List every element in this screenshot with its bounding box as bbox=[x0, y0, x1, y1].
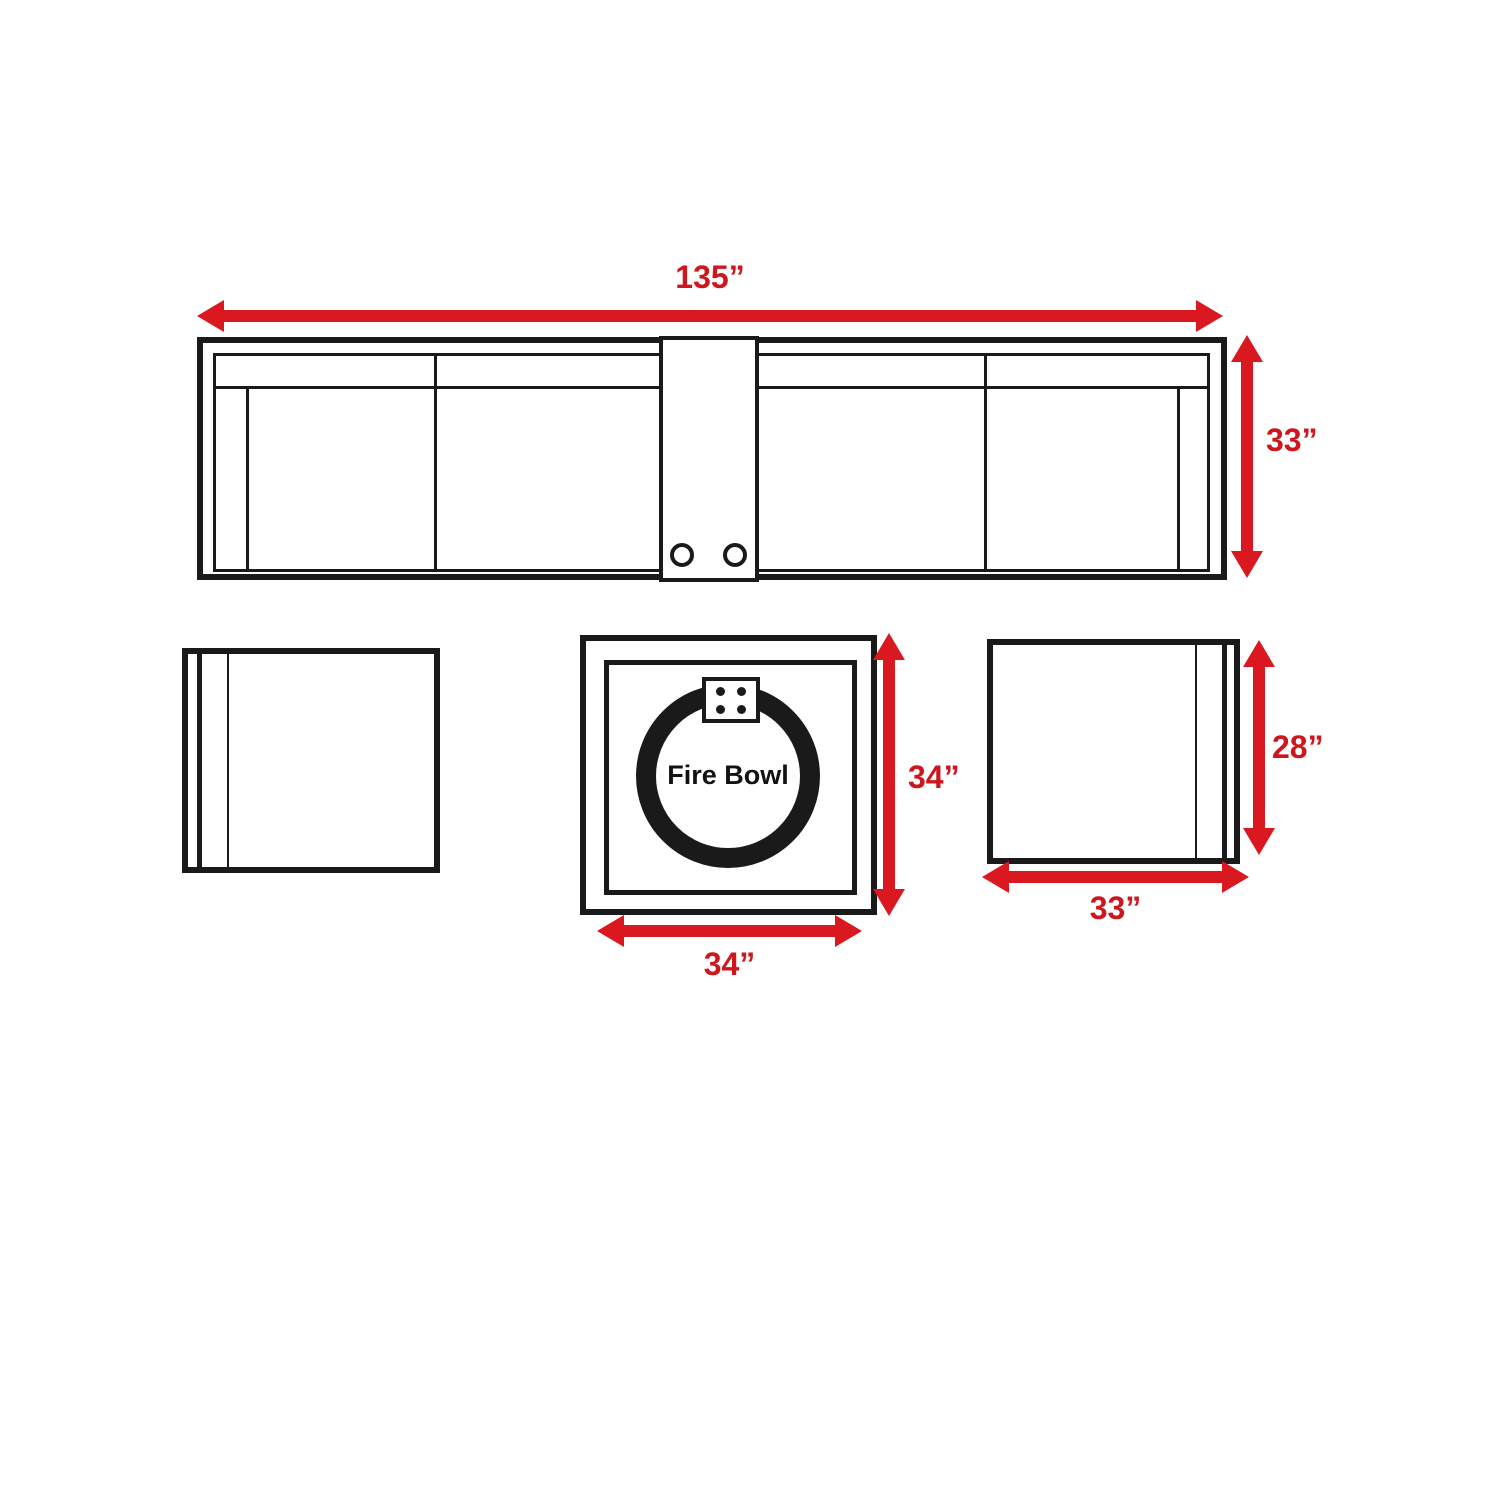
arrow-shaft bbox=[883, 657, 895, 892]
burner-control-box bbox=[702, 677, 760, 723]
arrow-shaft bbox=[1006, 871, 1225, 883]
chair-edge-line-thick bbox=[1222, 645, 1227, 858]
fire-table-height-arrow bbox=[873, 633, 905, 916]
side-table-edge-line-thick bbox=[197, 654, 202, 867]
furniture-dimension-diagram: 135” 33” Fire Bowl 34” bbox=[0, 0, 1500, 1500]
fire-bowl-label: Fire Bowl bbox=[628, 762, 828, 789]
burner-dot bbox=[737, 705, 746, 714]
chair-height-arrow bbox=[1243, 640, 1275, 855]
arrow-head-left-icon bbox=[597, 915, 624, 947]
arrow-head-right-icon bbox=[835, 915, 862, 947]
chair-edge-line-thin bbox=[1195, 645, 1197, 858]
cup-holder bbox=[723, 543, 747, 567]
arrow-head-bottom-icon bbox=[1243, 828, 1275, 855]
arrow-head-top-icon bbox=[873, 633, 905, 660]
sofa-width-label: 135” bbox=[197, 261, 1223, 293]
sofa-left-seat-divider bbox=[434, 355, 437, 572]
arrow-head-top-icon bbox=[1231, 335, 1263, 362]
arrow-shaft bbox=[1253, 664, 1265, 831]
burner-dot bbox=[716, 687, 725, 696]
side-table-outline bbox=[182, 648, 440, 873]
arrow-head-left-icon bbox=[197, 300, 224, 332]
arrow-shaft bbox=[221, 310, 1199, 322]
sofa-height-arrow bbox=[1231, 335, 1263, 578]
chair-width-arrow bbox=[982, 861, 1249, 893]
chair-height-label: 28” bbox=[1272, 731, 1324, 763]
sofa-right-arm-line bbox=[1177, 388, 1180, 572]
arrow-head-bottom-icon bbox=[873, 889, 905, 916]
burner-dot bbox=[737, 687, 746, 696]
sofa-width-arrow bbox=[197, 300, 1223, 332]
sofa-left-arm-line bbox=[246, 388, 249, 572]
burner-dot bbox=[716, 705, 725, 714]
arrow-head-right-icon bbox=[1196, 300, 1223, 332]
fire-table-width-arrow bbox=[597, 915, 862, 947]
arrow-head-top-icon bbox=[1243, 640, 1275, 667]
arrow-head-bottom-icon bbox=[1231, 551, 1263, 578]
sofa-height-label: 33” bbox=[1266, 424, 1318, 456]
sofa-right-seat-divider bbox=[984, 355, 987, 572]
arrow-shaft bbox=[1241, 359, 1253, 554]
fire-table-width-label: 34” bbox=[597, 948, 862, 980]
side-table-edge-line-thin bbox=[227, 654, 229, 867]
arrow-head-left-icon bbox=[982, 861, 1009, 893]
chair-width-label: 33” bbox=[982, 892, 1249, 924]
arrow-head-right-icon bbox=[1222, 861, 1249, 893]
chair-outline bbox=[987, 639, 1240, 864]
arrow-shaft bbox=[621, 925, 838, 937]
fire-table-height-label: 34” bbox=[908, 761, 960, 793]
cup-holder bbox=[670, 543, 694, 567]
